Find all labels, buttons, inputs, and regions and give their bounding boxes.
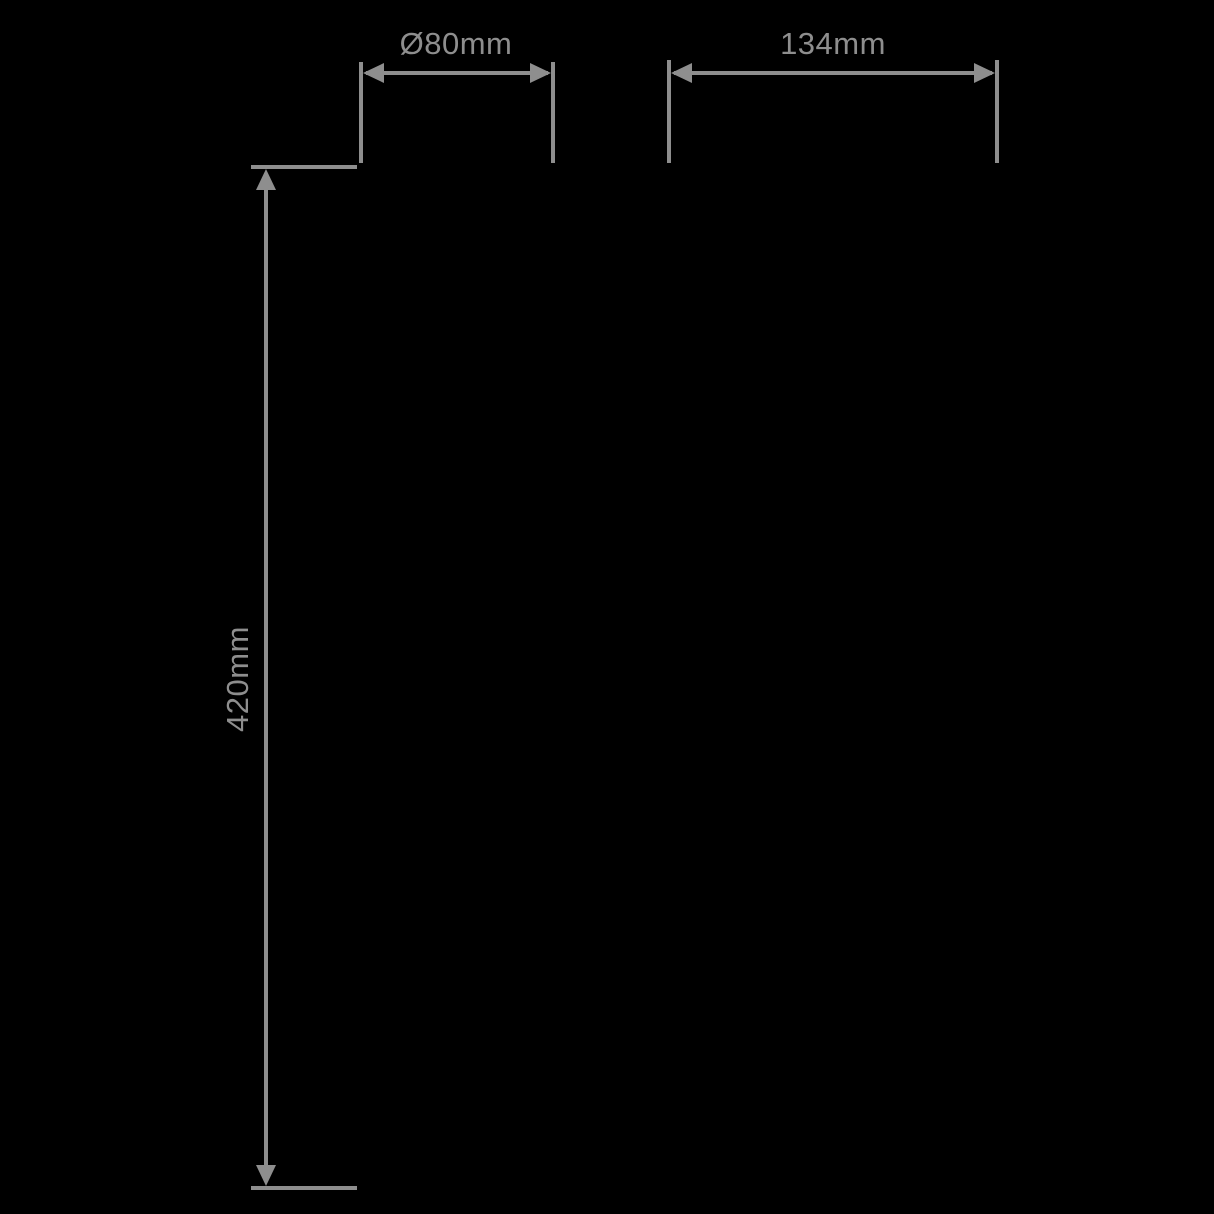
- extension-line-right: [551, 62, 555, 163]
- extension-tick-bottom: [251, 1186, 357, 1190]
- arrow-left-icon: [671, 63, 692, 83]
- dimension-line-horizontal: [674, 71, 992, 75]
- arrow-left-icon: [363, 63, 384, 83]
- dimension-line-horizontal: [366, 71, 548, 75]
- arrow-down-icon: [256, 1165, 276, 1186]
- dimension-width-label: 134mm: [733, 26, 933, 62]
- arrow-right-icon: [530, 63, 551, 83]
- product-dimension-drawing: 420mm Ø80mm 134mm: [0, 0, 1214, 1214]
- arrow-up-icon: [256, 169, 276, 190]
- dimension-diameter-label: Ø80mm: [356, 26, 556, 62]
- arrow-right-icon: [974, 63, 995, 83]
- dimension-line-vertical: [264, 178, 268, 1178]
- dimension-height-label: 420mm: [220, 559, 256, 799]
- extension-line-right: [995, 60, 999, 163]
